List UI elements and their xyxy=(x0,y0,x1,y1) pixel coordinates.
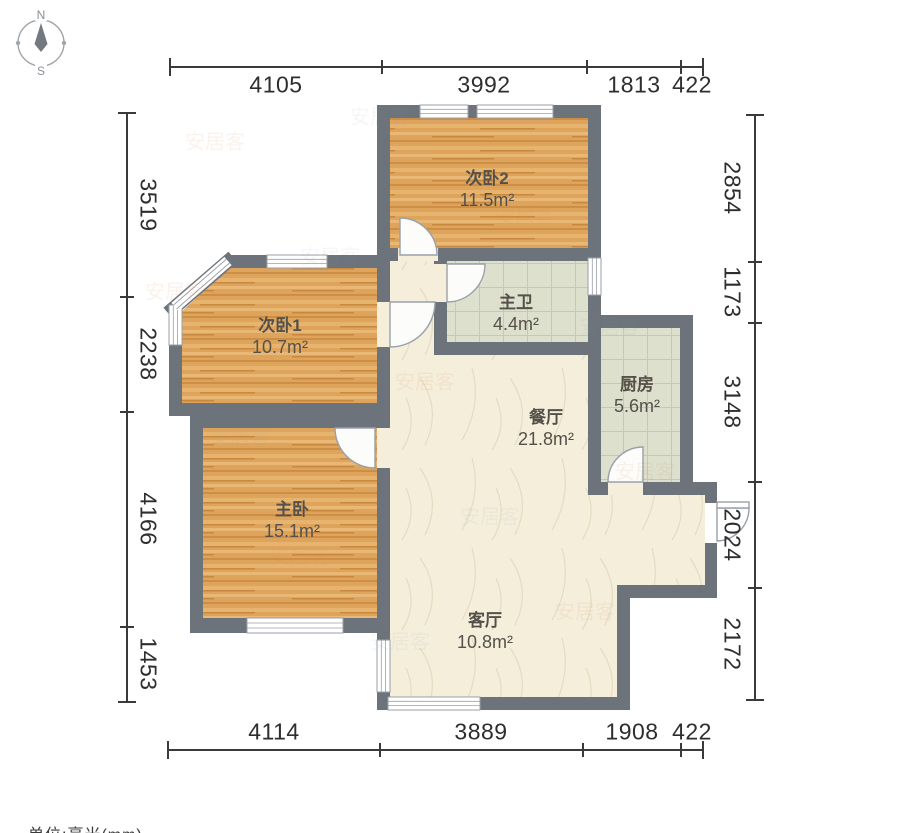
dim-left-3: 4166 xyxy=(135,492,162,545)
room-label-master-bedroom: 主卧 15.1m² xyxy=(264,499,320,543)
compass: N S xyxy=(16,7,66,78)
room-name: 主卫 xyxy=(493,292,539,313)
compass-north-label: N xyxy=(37,8,46,22)
room-area: 4.4m² xyxy=(493,313,539,336)
room-name: 客厅 xyxy=(457,610,513,631)
entry-door-opening xyxy=(705,503,717,543)
dim-left-1: 3519 xyxy=(135,178,162,231)
room-area: 10.8m² xyxy=(457,631,513,654)
room-label-dining: 餐厅 21.8m² xyxy=(518,407,574,451)
window xyxy=(169,305,182,345)
window xyxy=(588,258,601,295)
dim-right-2: 1173 xyxy=(719,266,746,317)
dim-left-2: 2238 xyxy=(135,327,162,380)
dim-right-1: 2854 xyxy=(719,161,746,214)
room-area: 5.6m² xyxy=(614,395,660,418)
room-name: 厨房 xyxy=(614,374,660,395)
dim-left-4: 1453 xyxy=(135,637,162,690)
room-label-kitchen: 厨房 5.6m² xyxy=(614,374,660,418)
watermark: 安居客 xyxy=(460,501,520,530)
room-label-bedroom2: 次卧2 11.5m² xyxy=(460,168,515,212)
master-door-opening xyxy=(377,428,390,468)
bedroom1-door-opening xyxy=(377,302,390,347)
watermark: 安居客 xyxy=(145,276,205,305)
dim-top-3: 1813 xyxy=(607,72,660,99)
dim-top-4: 422 xyxy=(672,72,712,99)
room-label-living: 客厅 10.8m² xyxy=(457,610,513,654)
dim-bottom-3: 1908 xyxy=(605,719,658,746)
floor-plan-drawing: N S xyxy=(0,0,900,833)
room-label-master-bath: 主卫 4.4m² xyxy=(493,292,539,336)
dimension-line-left xyxy=(118,113,136,702)
room-name: 次卧2 xyxy=(460,168,515,189)
window xyxy=(420,105,468,118)
watermark: 安居客 xyxy=(555,596,615,625)
watermark: 安居客 xyxy=(370,626,430,655)
dim-bottom-2: 3889 xyxy=(454,719,507,746)
room-label-bedroom1: 次卧1 10.7m² xyxy=(252,315,308,359)
watermark: 安居客 xyxy=(395,366,455,395)
watermark: 安居客 xyxy=(615,456,675,485)
floor-plan-page: N S 安居客 安居客 安居客 安居客 安居客 安居客 安居客 安居客 安居客 … xyxy=(0,0,900,833)
room-area: 15.1m² xyxy=(264,520,320,543)
watermark: 安居客 xyxy=(210,421,270,450)
compass-needle-icon xyxy=(35,23,48,52)
watermark: 安居客 xyxy=(185,126,245,155)
dim-right-5: 2172 xyxy=(719,617,746,670)
watermark: 安居客 xyxy=(270,541,330,570)
unit-note: 单位:毫米(mm) xyxy=(28,821,143,833)
room-area: 10.7m² xyxy=(252,336,308,359)
room-name: 主卧 xyxy=(264,499,320,520)
bath-door-opening xyxy=(434,264,447,302)
dim-top-1: 4105 xyxy=(249,72,302,99)
room-name: 次卧1 xyxy=(252,315,308,336)
compass-south-label: S xyxy=(37,64,45,78)
compass-east-dot xyxy=(62,41,66,45)
dim-top-2: 3992 xyxy=(457,72,510,99)
dim-bottom-1: 4114 xyxy=(248,719,299,746)
watermark: 安居客 xyxy=(350,101,410,130)
watermark: 安居客 xyxy=(300,241,360,270)
room-area: 11.5m² xyxy=(460,189,515,212)
dim-bottom-4: 422 xyxy=(672,719,712,746)
dim-right-4: 2024 xyxy=(719,508,746,561)
dim-right-3: 3148 xyxy=(719,375,746,428)
compass-west-dot xyxy=(16,41,20,45)
window xyxy=(477,105,553,118)
dimension-line-right xyxy=(746,115,764,700)
room-name: 餐厅 xyxy=(518,407,574,428)
window xyxy=(388,697,480,710)
room-area: 21.8m² xyxy=(518,428,574,451)
window xyxy=(247,618,343,633)
watermark: 安居客 xyxy=(580,311,640,340)
